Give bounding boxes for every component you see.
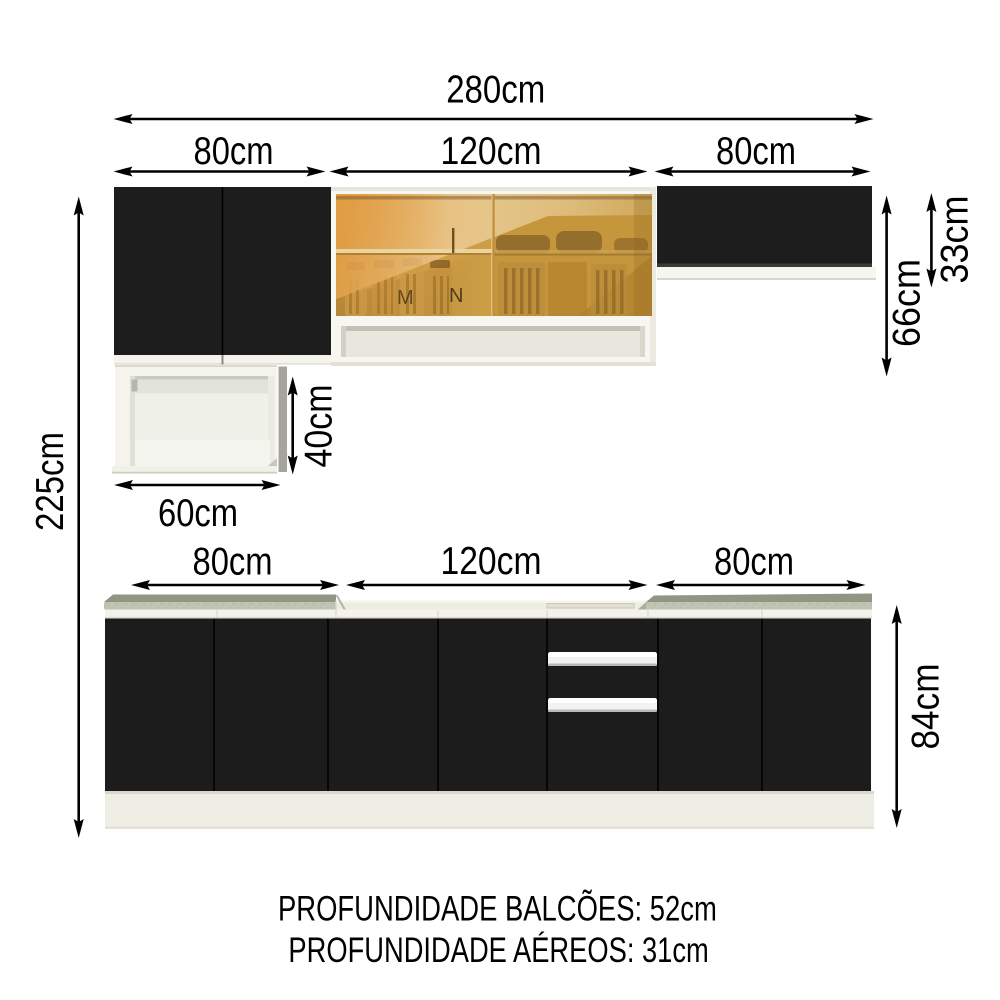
svg-text:80cm: 80cm [194, 130, 274, 173]
svg-text:84cm: 84cm [905, 664, 948, 750]
svg-text:120cm: 120cm [441, 540, 542, 583]
svg-text:66cm: 66cm [886, 259, 929, 347]
svg-text:PROFUNDIDADE BALCÕES: 52cm: PROFUNDIDADE BALCÕES: 52cm [278, 889, 717, 929]
svg-text:80cm: 80cm [714, 541, 794, 584]
svg-text:80cm: 80cm [716, 130, 796, 173]
svg-text:33cm: 33cm [934, 196, 977, 284]
svg-text:80cm: 80cm [193, 541, 273, 584]
svg-text:280cm: 280cm [446, 69, 545, 112]
svg-text:60cm: 60cm [158, 492, 238, 535]
svg-text:225cm: 225cm [29, 432, 72, 531]
svg-text:PROFUNDIDADE AÉREOS: 31cm: PROFUNDIDADE AÉREOS: 31cm [288, 931, 708, 970]
svg-text:40cm: 40cm [298, 385, 341, 468]
svg-text:120cm: 120cm [441, 130, 542, 173]
